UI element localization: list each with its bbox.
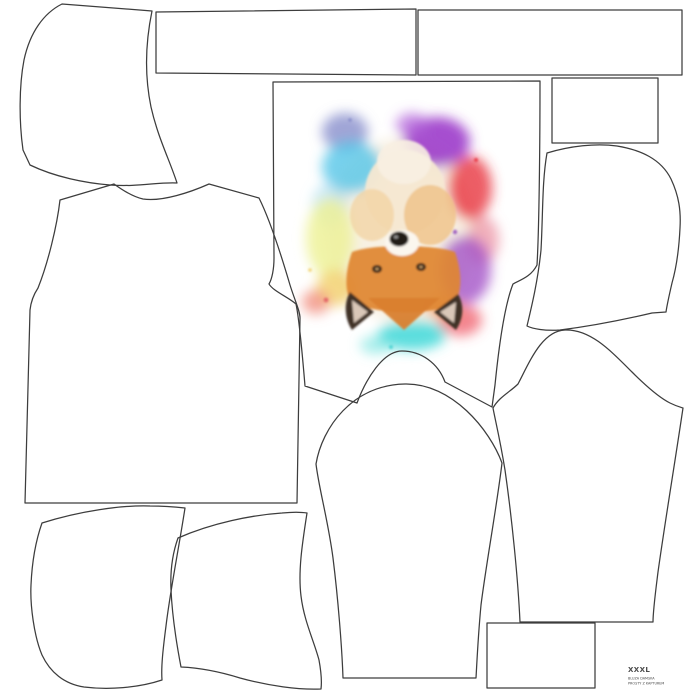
waistband-strip-1 <box>156 9 416 75</box>
pocket-piece-middle <box>171 512 322 689</box>
small-rectangle-bottom-right <box>487 623 595 688</box>
sleeve-right <box>493 330 683 622</box>
sleeve-center <box>316 384 502 678</box>
size-label-line3: PROSTY Z KAPTUREM <box>628 682 664 686</box>
small-rectangle-top-right <box>552 78 658 143</box>
back-bodice-left <box>25 184 300 503</box>
size-label-size: XXXL <box>628 666 650 674</box>
fox-watercolor-artwork <box>302 113 499 354</box>
pattern-panel: XXXL BLUZA DAMSKA PROSTY Z KAPTUREM <box>0 0 700 700</box>
pattern-layout-svg: XXXL BLUZA DAMSKA PROSTY Z KAPTUREM <box>0 0 700 700</box>
pocket-piece-left <box>31 506 185 688</box>
size-label-line2: BLUZA DAMSKA <box>628 677 655 681</box>
size-label: XXXL BLUZA DAMSKA PROSTY Z KAPTUREM <box>628 666 664 686</box>
hood-side-left <box>20 4 177 185</box>
waistband-strip-2 <box>418 10 682 75</box>
hood-side-right <box>527 145 680 330</box>
